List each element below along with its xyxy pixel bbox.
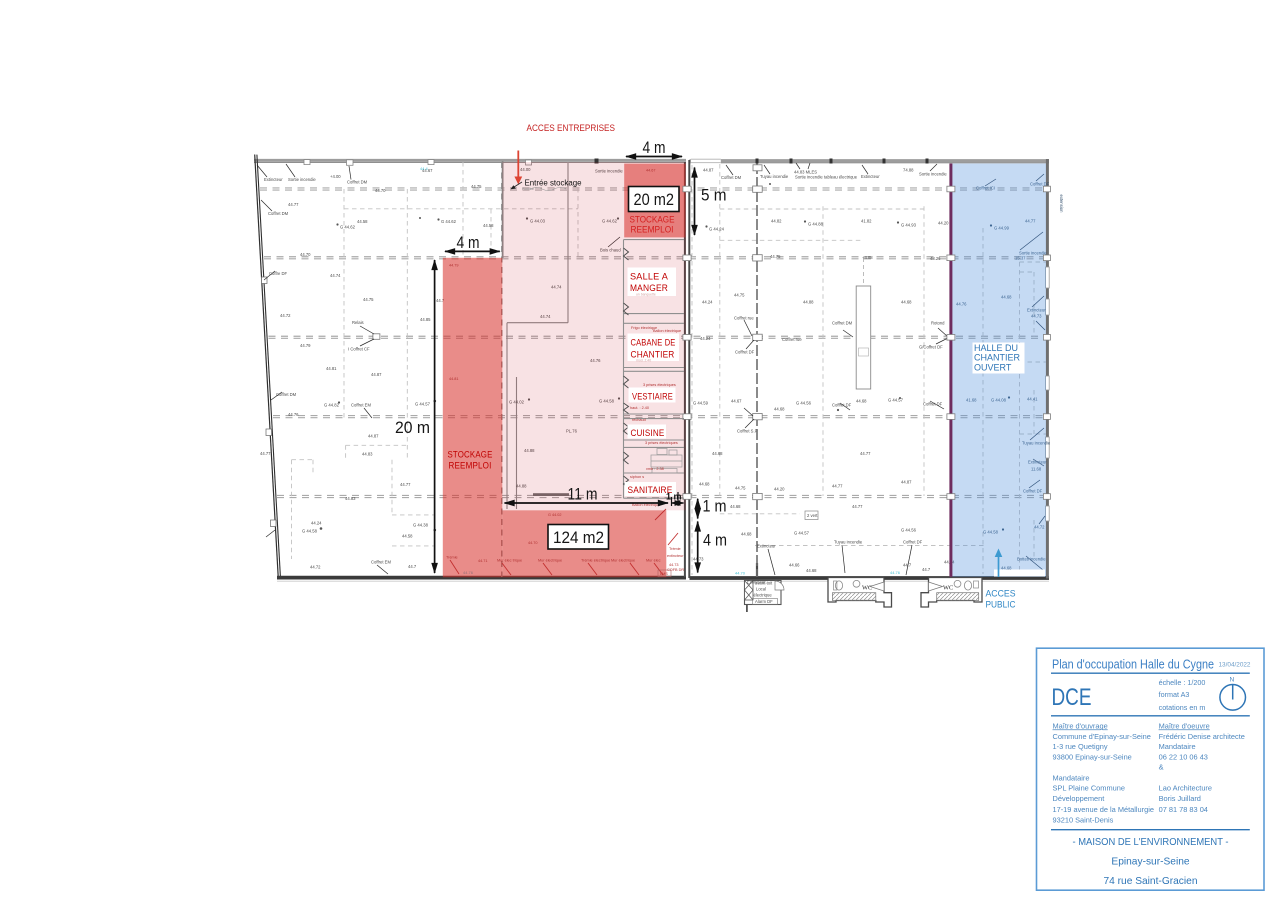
svg-text:DCE: DCE: [1052, 684, 1092, 711]
svg-text:Lao Architecture: Lao Architecture: [1159, 784, 1212, 793]
svg-text:Coffret DF: Coffret DF: [903, 540, 923, 545]
svg-text:3 prises électriques: 3 prises électriques: [645, 441, 678, 445]
svg-text:G 44.82: G 44.82: [324, 403, 340, 408]
svg-text:44.75: 44.75: [734, 293, 745, 298]
svg-text:G 44.62: G 44.62: [441, 219, 457, 224]
svg-text:Sortie incendie: Sortie incendie: [795, 175, 823, 180]
svg-text:Coffret rue: Coffret rue: [734, 316, 754, 321]
svg-text:44.75: 44.75: [735, 486, 746, 491]
svg-text:Coffret DM: Coffret DM: [268, 211, 289, 216]
svg-text:G 44.62: G 44.62: [340, 225, 356, 230]
svg-text:G 44.02: G 44.02: [548, 513, 562, 517]
svg-text:44.75: 44.75: [471, 184, 482, 189]
svg-text:44.88: 44.88: [803, 300, 814, 305]
svg-text:44.82: 44.82: [771, 219, 782, 224]
svg-text:44.70: 44.70: [300, 252, 311, 257]
svg-text:93800 Epinay-sur-Seine: 93800 Epinay-sur-Seine: [1053, 752, 1132, 761]
svg-text:44.71: 44.71: [478, 559, 488, 563]
svg-text:44.77: 44.77: [832, 484, 843, 489]
svg-text:Coffret DF: Coffret DF: [832, 403, 852, 408]
svg-text:format A3: format A3: [1159, 690, 1190, 699]
svg-text:1 m: 1 m: [703, 497, 727, 516]
svg-text:cotations en m: cotations en m: [1159, 703, 1206, 712]
svg-text:44.72: 44.72: [280, 313, 291, 318]
svg-text:44.68: 44.68: [901, 300, 912, 305]
svg-text:extension: extension: [1059, 195, 1064, 214]
svg-text:44.79: 44.79: [300, 343, 311, 348]
svg-text:Relais: Relais: [352, 320, 364, 325]
svg-text:3 prises électriques: 3 prises électriques: [643, 383, 676, 387]
svg-text:44.20: 44.20: [774, 487, 785, 492]
svg-text:44.79: 44.79: [449, 264, 459, 268]
svg-text:17-19 avenue de la Métallurgie: 17-19 avenue de la Métallurgie: [1053, 805, 1154, 814]
svg-text:Mur électrique: Mur électrique: [611, 559, 635, 563]
svg-text:extincteur: extincteur: [667, 554, 684, 558]
svg-text:44.68: 44.68: [730, 504, 741, 509]
svg-text:44.87: 44.87: [901, 480, 912, 485]
svg-text:G 44.38: G 44.38: [413, 523, 429, 528]
svg-text:Ballon électrique: Ballon électrique: [653, 329, 681, 333]
svg-text:44.77: 44.77: [288, 202, 299, 207]
svg-text:Local: Local: [756, 587, 766, 592]
svg-text:44.68: 44.68: [741, 532, 752, 537]
svg-text:WC: WC: [862, 585, 872, 592]
svg-text:REEMPLOI: REEMPLOI: [631, 223, 674, 234]
svg-text:44.85: 44.85: [420, 317, 431, 322]
svg-text:G 44.93: G 44.93: [901, 223, 917, 228]
svg-text:44.81: 44.81: [449, 377, 459, 381]
svg-text:tableau électrique: tableau électrique: [824, 175, 858, 180]
svg-text:Tuyau incendie: Tuyau incendie: [760, 174, 789, 179]
svg-text:4 m: 4 m: [643, 138, 666, 157]
svg-text:SPL Plaine Commune: SPL Plaine Commune: [1053, 784, 1125, 793]
svg-text:44.83: 44.83: [362, 452, 373, 457]
svg-text:mod. 2.40: mod. 2.40: [636, 359, 651, 363]
svg-text:11 m: 11 m: [568, 485, 598, 504]
svg-text:44.67: 44.67: [731, 399, 742, 404]
svg-text:Portillon: Portillon: [522, 187, 534, 191]
svg-text:CUISINE: CUISINE: [631, 428, 665, 439]
svg-text:41.82: 41.82: [861, 219, 872, 224]
svg-text:44.75: 44.75: [770, 254, 781, 259]
svg-text:1-3 rue Quetigny: 1-3 rue Quetigny: [1053, 742, 1108, 751]
svg-text:44.72: 44.72: [310, 565, 321, 570]
svg-text:Trémie: Trémie: [669, 547, 681, 551]
svg-text:74.88: 74.88: [903, 168, 914, 173]
svg-text:Boris Juillard: Boris Juillard: [1159, 794, 1201, 803]
svg-text:5 m: 5 m: [701, 186, 727, 205]
svg-text:44.4: 44.4: [420, 166, 429, 171]
svg-text:13/04/2022: 13/04/2022: [1219, 662, 1251, 669]
svg-text:Extincteur: Extincteur: [264, 177, 283, 182]
svg-text:74 rue Saint-Gracien: 74 rue Saint-Gracien: [1103, 876, 1197, 887]
svg-text:WC: WC: [943, 585, 953, 592]
svg-text:44.58: 44.58: [483, 223, 494, 228]
svg-text:CABANE DE: CABANE DE: [631, 338, 676, 349]
svg-text:haut. : 2.40: haut. : 2.40: [630, 406, 649, 410]
svg-text:G/Coffret DF: G/Coffret DF: [919, 345, 943, 350]
svg-text:44.77: 44.77: [400, 482, 411, 487]
svg-text:Frédéric Denise architecte: Frédéric Denise architecte: [1159, 732, 1245, 741]
svg-text:20 m2: 20 m2: [634, 190, 675, 209]
svg-text:44.7: 44.7: [408, 564, 417, 569]
svg-text:Entrée stockage: Entrée stockage: [525, 178, 583, 187]
svg-text:44.73: 44.73: [669, 563, 679, 567]
svg-text:HALLE DU: HALLE DU: [974, 343, 1018, 353]
svg-text:STOCKAGE: STOCKAGE: [448, 450, 493, 461]
svg-text:Trémie: Trémie: [446, 556, 458, 560]
svg-text:Maître d'oeuvre: Maître d'oeuvre: [1159, 721, 1210, 730]
svg-text:G 44.56: G 44.56: [901, 528, 917, 533]
svg-text:44.75: 44.75: [363, 297, 374, 302]
svg-text:Coffret S.P: Coffret S.P: [737, 429, 758, 434]
svg-text:Mur élec: Mur élec: [646, 559, 661, 563]
svg-text:44.24: 44.24: [702, 300, 713, 305]
svg-text:Alarm DF: Alarm DF: [755, 599, 773, 604]
svg-text:réchaud: réchaud: [632, 418, 646, 422]
svg-text:VESTIAIRE: VESTIAIRE: [632, 391, 673, 402]
svg-text:20 m: 20 m: [395, 418, 430, 437]
svg-text:44.76: 44.76: [288, 412, 299, 417]
svg-text:44.73: 44.73: [693, 557, 704, 562]
svg-text:44.66: 44.66: [789, 563, 800, 568]
svg-text:44.67: 44.67: [646, 169, 656, 173]
svg-text:CHANTIER: CHANTIER: [974, 353, 1021, 363]
svg-text:Tuyau incendie: Tuyau incendie: [834, 540, 863, 545]
svg-text:44.58: 44.58: [357, 219, 368, 224]
svg-text:Plan d'occupation Halle du Cyg: Plan d'occupation Halle du Cygne: [1052, 658, 1214, 672]
svg-text:PUBLIC: PUBLIC: [986, 600, 1016, 610]
svg-text:Coffret DM: Coffret DM: [832, 321, 853, 326]
svg-text:44.87: 44.87: [371, 372, 382, 377]
svg-text:44.20: 44.20: [938, 221, 949, 226]
svg-text:44.24: 44.24: [311, 521, 322, 526]
svg-text:44.83: 44.83: [345, 496, 356, 501]
svg-text:44.70: 44.70: [375, 188, 386, 193]
svg-text:Mur élec trique: Mur élec trique: [497, 559, 522, 563]
svg-text:44.70: 44.70: [528, 541, 538, 545]
svg-text:ACCES ENTREPRISES: ACCES ENTREPRISES: [527, 122, 616, 133]
svg-text:G 44.57: G 44.57: [415, 402, 431, 407]
svg-text:un banquette: un banquette: [636, 293, 656, 297]
svg-text:siphon s: siphon s: [630, 475, 644, 479]
svg-text:électrique: électrique: [754, 593, 773, 598]
svg-text:Extincteur: Extincteur: [757, 544, 776, 549]
svg-text:44.68: 44.68: [699, 482, 710, 487]
svg-text:Rotond: Rotond: [931, 321, 945, 326]
svg-text:&: &: [1159, 763, 1164, 772]
svg-text:Commune d'Epinay-sur-Seine: Commune d'Epinay-sur-Seine: [1053, 732, 1151, 741]
svg-text:4 m: 4 m: [457, 233, 480, 252]
svg-text:44.77: 44.77: [260, 451, 271, 456]
svg-text:Epinay-sur-Seine: Epinay-sur-Seine: [1111, 857, 1189, 868]
svg-text:Coffret DM: Coffret DM: [721, 175, 742, 180]
svg-text:I Coffret CF: I Coffret CF: [348, 347, 370, 352]
svg-text:2 vert: 2 vert: [807, 513, 818, 518]
svg-text:Coffret rue: Coffret rue: [782, 337, 802, 342]
svg-text:Extincteur: Extincteur: [747, 580, 766, 585]
svg-text:G 44.88: G 44.88: [808, 222, 824, 227]
svg-text:Coffret DF: Coffret DF: [735, 350, 755, 355]
svg-text:44.77: 44.77: [860, 451, 871, 456]
svg-text:vmb : 2.38: vmb : 2.38: [646, 467, 664, 471]
svg-text:+4.88: +4.88: [862, 255, 873, 260]
svg-text:06 22 10 06 43: 06 22 10 06 43: [1159, 752, 1208, 761]
svg-text:44.70: 44.70: [735, 571, 746, 576]
svg-text:93210 Saint-Denis: 93210 Saint-Denis: [1053, 816, 1114, 825]
svg-text:44.74: 44.74: [330, 273, 341, 278]
svg-text:Développement: Développement: [1053, 794, 1105, 803]
svg-text:ACCES: ACCES: [986, 589, 1016, 599]
svg-text:48.26: 48.26: [930, 256, 941, 261]
svg-text:44.77: 44.77: [852, 504, 863, 509]
svg-text:44.7: 44.7: [922, 567, 931, 572]
svg-text:REEMPLOI: REEMPLOI: [449, 461, 492, 472]
svg-text:+4.00: +4.00: [330, 174, 341, 179]
svg-text:Maître d'ouvrage: Maître d'ouvrage: [1053, 721, 1108, 730]
svg-text:G 44.58: G 44.58: [302, 529, 318, 534]
svg-text:44.76: 44.76: [890, 570, 901, 575]
svg-text:44.87: 44.87: [368, 434, 379, 439]
svg-text:44.68: 44.68: [806, 568, 817, 573]
svg-text:SALLE A: SALLE A: [630, 272, 668, 283]
svg-text:Coffret DM: Coffret DM: [347, 180, 368, 185]
svg-text:4 m: 4 m: [703, 531, 727, 550]
svg-text:G 44.57: G 44.57: [794, 531, 810, 536]
svg-text:Mandataire: Mandataire: [1159, 742, 1196, 751]
svg-text:Coffret EM: Coffret EM: [371, 560, 391, 565]
svg-text:Sortie incendie: Sortie incendie: [919, 172, 947, 177]
svg-text:44.58: 44.58: [402, 534, 413, 539]
svg-text:44.68: 44.68: [712, 451, 723, 456]
svg-text:G 44.24: G 44.24: [709, 227, 725, 232]
svg-text:Coffret EM: Coffret EM: [351, 403, 371, 408]
svg-text:G 44.56: G 44.56: [796, 401, 812, 406]
svg-text:44.68: 44.68: [774, 407, 785, 412]
svg-text:G 44.57: G 44.57: [888, 398, 904, 403]
svg-text:Extincteur: Extincteur: [861, 174, 880, 179]
svg-text:44.87: 44.87: [703, 168, 714, 173]
svg-text:échelle : 1/200: échelle : 1/200: [1159, 678, 1206, 687]
svg-text:44.81: 44.81: [326, 366, 337, 371]
svg-text:124 m2: 124 m2: [553, 528, 604, 547]
svg-text:Mandataire: Mandataire: [1053, 773, 1090, 782]
svg-text:44.68: 44.68: [856, 399, 867, 404]
svg-text:Trémie électrique: Trémie électrique: [581, 559, 610, 563]
svg-text:- MAISON DE L'ENVIRONNEMENT -: - MAISON DE L'ENVIRONNEMENT -: [1073, 837, 1229, 848]
svg-text:1 m: 1 m: [666, 492, 682, 502]
svg-text:LMS: LMS: [660, 572, 668, 576]
svg-text:Sortie incendie: Sortie incendie: [288, 177, 316, 182]
svg-text:Mur électrique: Mur électrique: [538, 559, 562, 563]
svg-text:OUVERT: OUVERT: [974, 362, 1012, 372]
svg-text:07 81 78 83 04: 07 81 78 83 04: [1159, 805, 1208, 814]
svg-text:N: N: [1230, 677, 1235, 684]
svg-text:G 44.59: G 44.59: [693, 401, 709, 406]
svg-text:44.24: 44.24: [700, 336, 711, 341]
